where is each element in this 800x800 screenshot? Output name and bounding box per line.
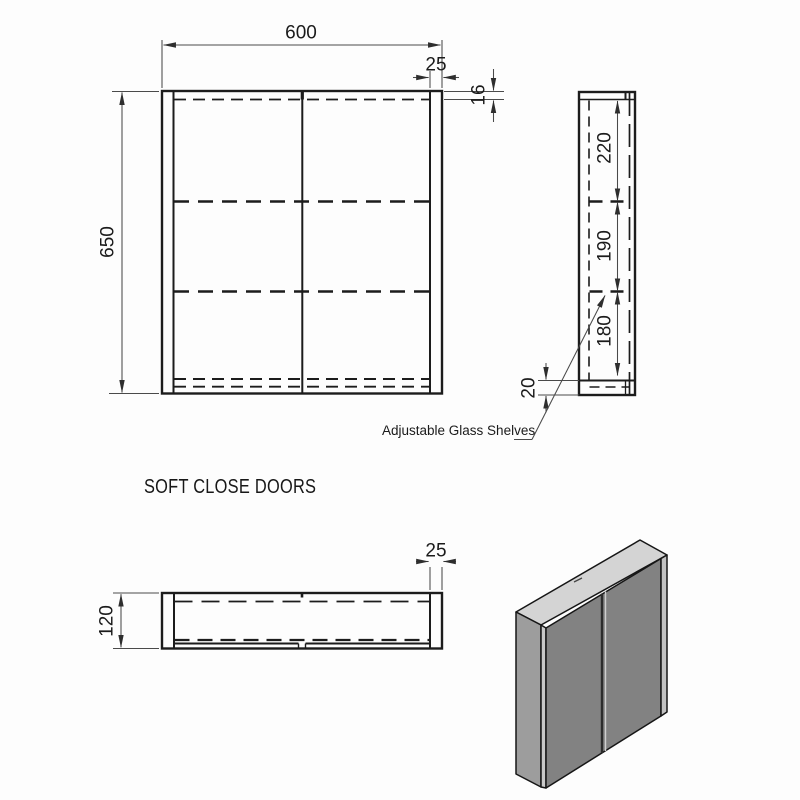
side-bottom-offset-label: 20	[520, 377, 539, 398]
side-shelf-gap-middle-label: 190	[596, 230, 615, 262]
adjustable-glass-shelves-note: Adjustable Glass Shelves	[382, 424, 535, 438]
technical-drawing-mirror-cabinet: 600 25 16 650 220 190 180 20 25 120 Adju…	[0, 0, 800, 800]
soft-close-doors-caption: SOFT CLOSE DOORS	[144, 477, 316, 497]
front-view	[162, 91, 442, 394]
iso-left-face	[516, 612, 541, 787]
front-view-dimensions	[109, 40, 504, 394]
drawing-canvas	[0, 0, 800, 800]
plan-depth-label: 120	[98, 605, 117, 637]
isometric-view	[516, 540, 667, 788]
shelves-leader-line	[514, 296, 605, 440]
front-panel-width-label: 25	[425, 56, 446, 75]
plan-view-dimensions	[113, 562, 456, 649]
front-width-label: 600	[285, 24, 317, 43]
plan-panel-width-label: 25	[425, 542, 446, 561]
side-shelf-gap-top-label: 220	[596, 132, 615, 164]
front-top-thickness-label: 16	[470, 84, 489, 105]
iso-right-edge-strip	[661, 555, 667, 716]
front-height-label: 650	[99, 226, 118, 258]
plan-view	[162, 593, 442, 649]
side-shelf-gap-bottom-label: 180	[596, 315, 615, 347]
